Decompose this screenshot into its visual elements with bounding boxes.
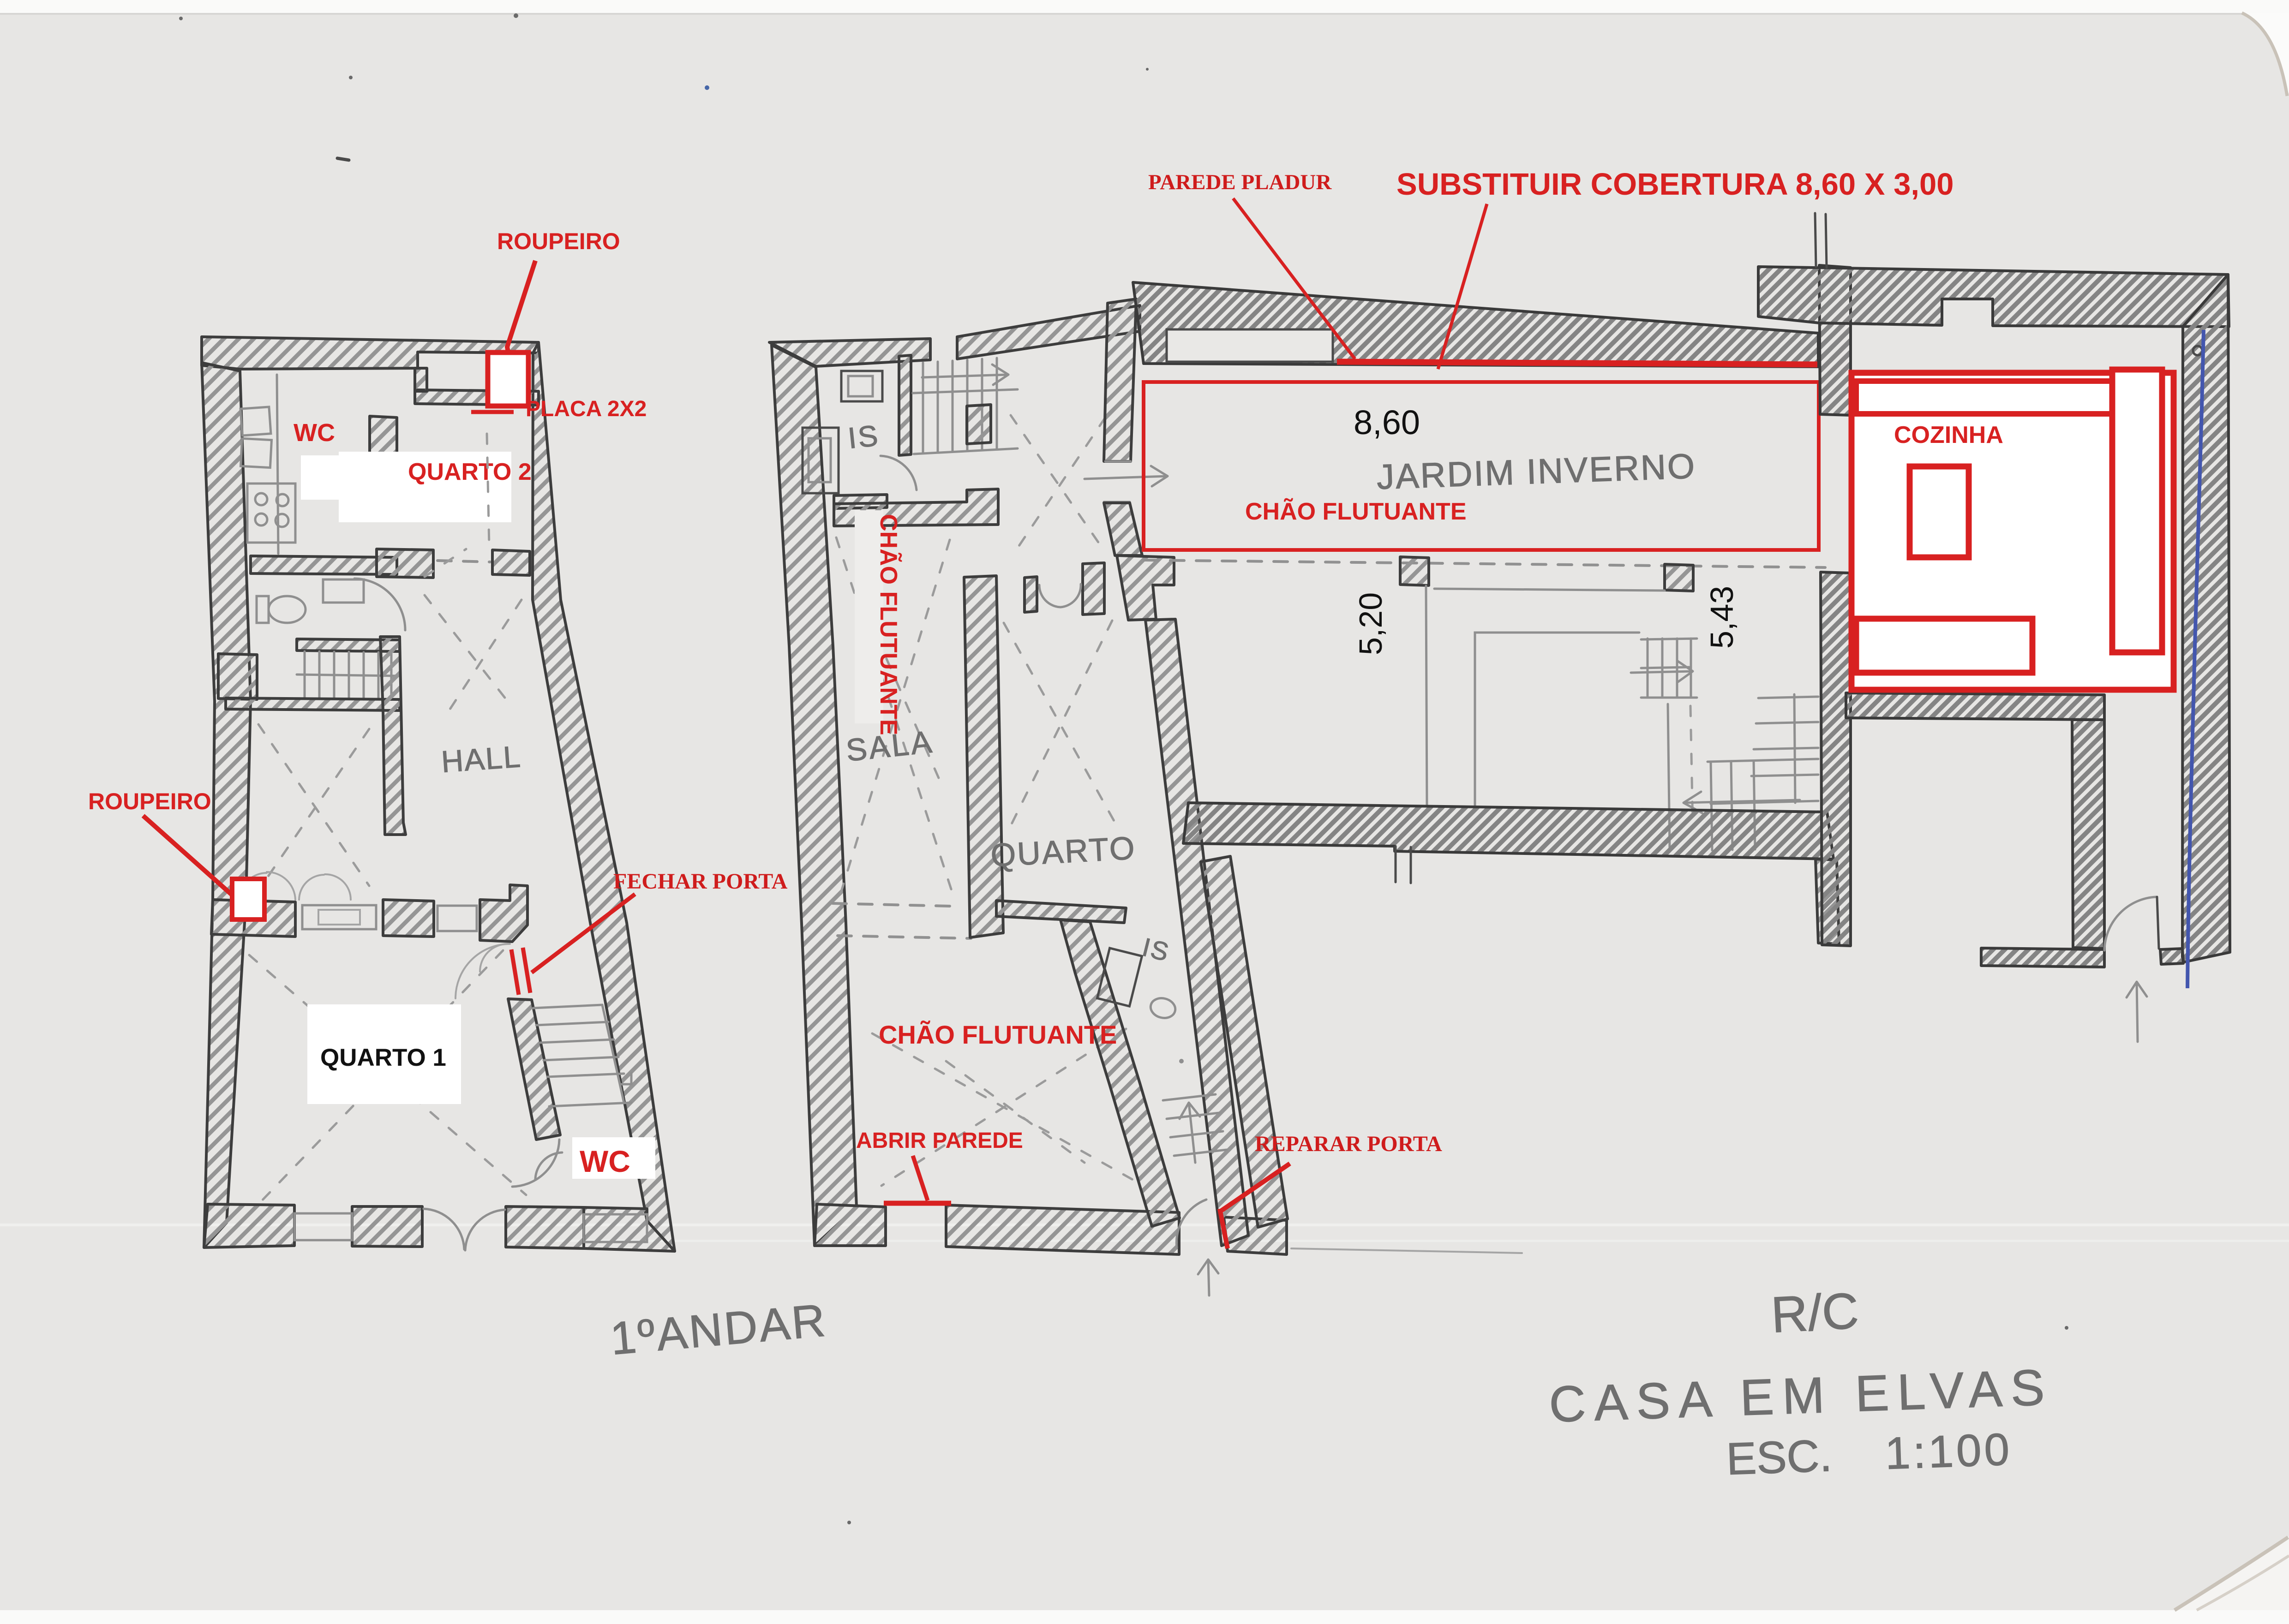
svg-text:CHÃO FLUTUANTE: CHÃO FLUTUANTE <box>875 514 902 735</box>
svg-text:CHÃO FLUTUANTE: CHÃO FLUTUANTE <box>879 1020 1117 1049</box>
svg-text:REPARAR PORTA: REPARAR PORTA <box>1255 1132 1442 1156</box>
svg-text:SUBSTITUIR COBERTURA 8,60 X 3,: SUBSTITUIR COBERTURA 8,60 X 3,00 <box>1396 167 1954 202</box>
svg-text:1:100: 1:100 <box>1884 1423 2013 1479</box>
svg-text:ESC.: ESC. <box>1726 1430 1833 1484</box>
svg-text:8,60: 8,60 <box>1354 403 1420 442</box>
svg-text:ROUPEIRO: ROUPEIRO <box>88 788 211 814</box>
svg-text:COZINHA: COZINHA <box>1894 422 2003 448</box>
svg-text:5,20: 5,20 <box>1353 592 1389 655</box>
svg-text:PLACA 2X2: PLACA 2X2 <box>526 397 647 421</box>
svg-text:ABRIR PAREDE: ABRIR PAREDE <box>856 1128 1023 1153</box>
svg-text:HALL: HALL <box>440 739 522 779</box>
svg-text:WC: WC <box>580 1144 630 1178</box>
svg-text:QUARTO: QUARTO <box>990 830 1137 873</box>
svg-text:PAREDE PLADUR: PAREDE PLADUR <box>1148 170 1332 194</box>
svg-text:QUARTO 1: QUARTO 1 <box>320 1044 446 1071</box>
svg-text:ROUPEIRO: ROUPEIRO <box>497 228 620 254</box>
svg-text:R/C: R/C <box>1770 1282 1860 1343</box>
svg-text:5,43: 5,43 <box>1704 586 1740 649</box>
svg-text:IS: IS <box>846 418 881 455</box>
svg-text:WC: WC <box>294 419 335 447</box>
svg-text:QUARTO 2: QUARTO 2 <box>408 459 532 485</box>
svg-text:FECHAR PORTA: FECHAR PORTA <box>613 869 788 894</box>
svg-text:CHÃO FLUTUANTE: CHÃO FLUTUANTE <box>1245 498 1467 525</box>
